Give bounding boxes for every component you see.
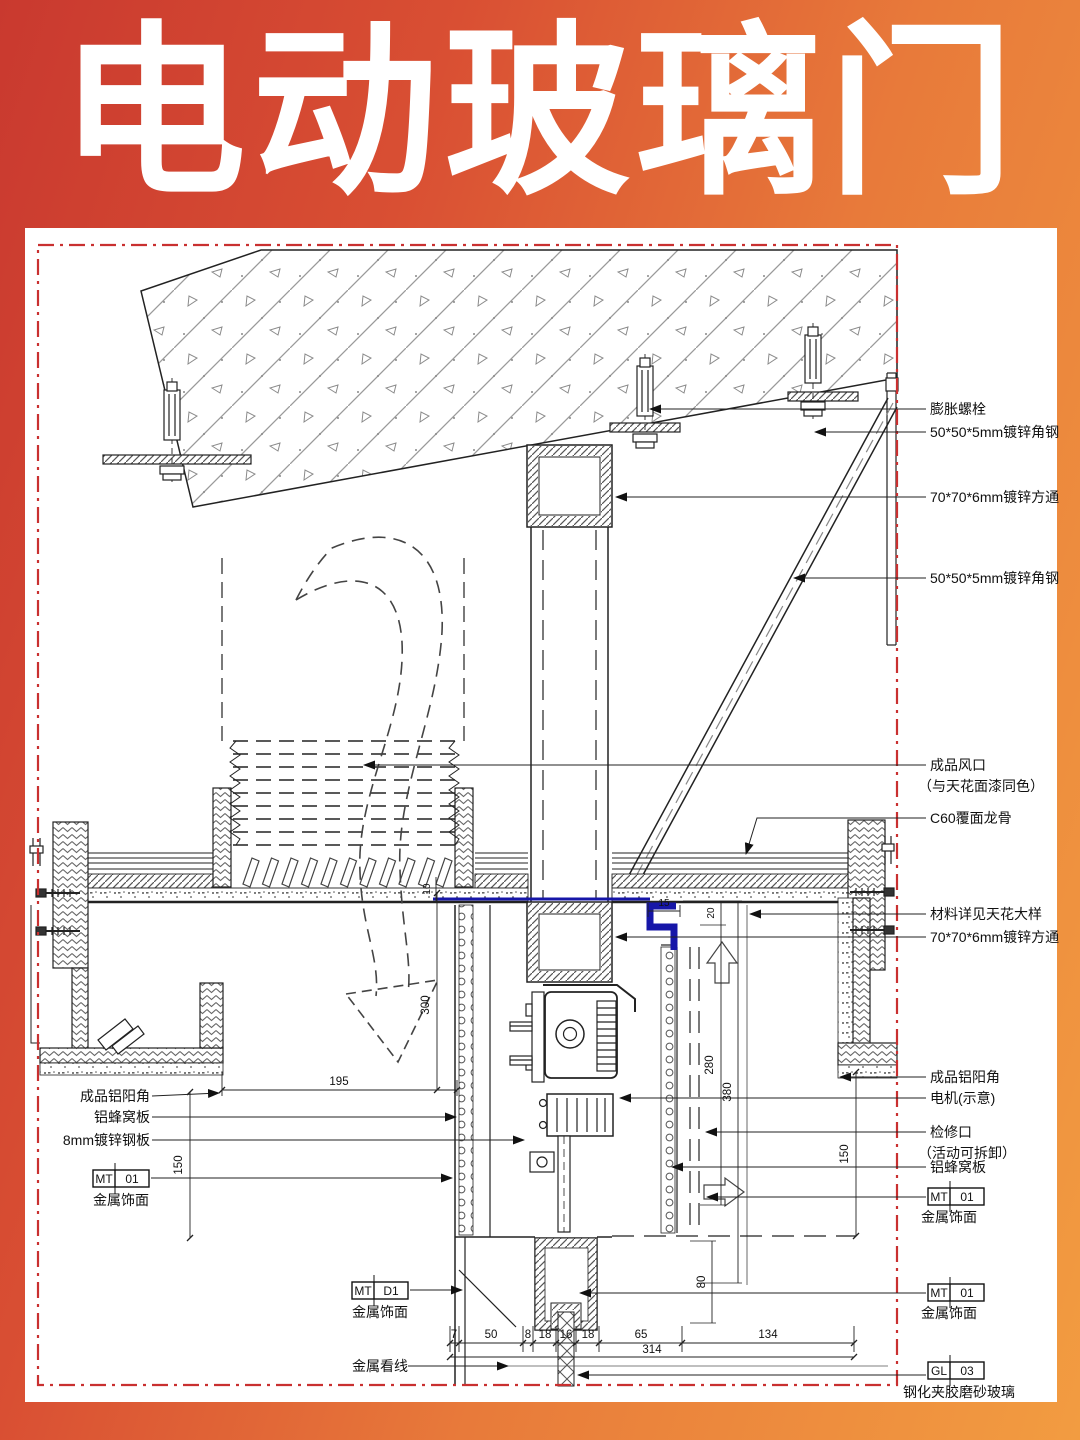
label-honeycomb-right: 铝蜂窝板 [930, 1159, 986, 1175]
tag-name: 金属饰面 [921, 1209, 977, 1225]
motor-assembly [510, 985, 635, 1232]
dim-65: 65 [635, 1329, 648, 1341]
label-sightline: 金属看线 [352, 1358, 408, 1374]
label-c60-keel: C60覆面龙骨 [930, 810, 1012, 826]
label-steel-plate: 8mm镀锌钢板 [63, 1132, 150, 1148]
dim-150-left: 150 [173, 1155, 185, 1174]
label-expansion-bolt: 膨胀螺栓 [930, 401, 986, 417]
tag-code: GL [931, 1364, 947, 1378]
label-air-outlet-sub: （与天花面漆同色） [918, 778, 1044, 794]
left-wall-assembly [30, 822, 223, 1075]
label-honeycomb-left: 铝蜂窝板 [94, 1109, 150, 1125]
cad-detail-drawing: 7 50 8 18 16 18 65 134 314 195 300 150 1… [0, 0, 1080, 1440]
tag-num: 01 [960, 1286, 974, 1300]
page: { "title": "电动玻璃门", "colors": { "gradien… [0, 0, 1080, 1440]
right-wall-assembly [838, 820, 897, 1078]
airflow-arrow [296, 537, 442, 1062]
dim-10: 10 [422, 883, 433, 895]
square-tube-lower [527, 902, 612, 982]
door-frame-glass [535, 1238, 597, 1386]
tag-mt-left: MT 01 金属饰面 [93, 1163, 149, 1208]
square-tube-top [527, 445, 612, 527]
label-material-note: 材料详见天花大样 [930, 906, 1042, 922]
tag-gl: GL 03 钢化夹胶磨砂玻璃 [903, 1355, 1015, 1400]
concrete-slab [141, 250, 897, 507]
annotation-labels-left: 成品铝阳角 铝蜂窝板 8mm镀锌钢板 金属看线 [63, 1088, 408, 1374]
tag-code: MT [930, 1190, 948, 1204]
tag-mt-right-1: MT 01 金属饰面 [921, 1181, 984, 1225]
dim-150-right: 150 [839, 1144, 851, 1163]
dim-16: 16 [560, 1329, 573, 1341]
dim-18a: 18 [539, 1329, 552, 1341]
tag-name: 金属饰面 [93, 1192, 149, 1208]
dim-15: 15 [658, 898, 670, 909]
dimension-labels: 7 50 8 18 16 18 65 134 314 195 300 150 1… [173, 883, 851, 1356]
tag-mt-bottom: MT D1 金属饰面 [352, 1275, 408, 1320]
column-shaft [531, 527, 608, 902]
label-access-panel: 检修口 [930, 1124, 972, 1140]
label-angle-steel-1: 50*50*5mm镀锌角钢 [930, 424, 1059, 440]
tag-num: 01 [125, 1172, 139, 1186]
label-square-tube-2: 70*70*6mm镀锌方通 [930, 929, 1059, 945]
tag-code: MT [95, 1172, 113, 1186]
dim-380: 380 [722, 1082, 734, 1101]
tag-name: 金属饰面 [352, 1304, 408, 1320]
label-square-tube-1: 70*70*6mm镀锌方通 [930, 489, 1059, 505]
dim-195: 195 [329, 1076, 348, 1088]
air-vent [213, 558, 473, 887]
dimension-lines [187, 877, 859, 1360]
tag-num: 01 [960, 1190, 974, 1204]
tag-num: 03 [960, 1364, 974, 1378]
dim-18b: 18 [582, 1329, 595, 1341]
tag-mt-right-2: MT 01 金属饰面 [921, 1277, 984, 1321]
label-alu-corner-right: 成品铝阳角 [930, 1069, 1000, 1085]
tag-name: 金属饰面 [921, 1305, 977, 1321]
dim-50: 50 [485, 1329, 498, 1341]
label-air-outlet: 成品风口 [930, 757, 986, 773]
tag-num: D1 [383, 1284, 399, 1298]
bulkhead [455, 905, 856, 1385]
tag-code: MT [930, 1286, 948, 1300]
tag-name: 钢化夹胶磨砂玻璃 [903, 1384, 1015, 1400]
dim-314: 314 [642, 1344, 662, 1356]
dim-300: 300 [420, 995, 432, 1014]
dim-134: 134 [758, 1329, 778, 1341]
label-motor: 电机(示意) [930, 1090, 995, 1106]
dim-8: 8 [525, 1329, 531, 1341]
label-angle-steel-2: 50*50*5mm镀锌角钢 [930, 570, 1059, 586]
label-alu-corner-left: 成品铝阳角 [80, 1088, 150, 1104]
annotation-labels-right: 膨胀螺栓 50*50*5mm镀锌角钢 70*70*6mm镀锌方通 50*50*5… [918, 401, 1059, 1175]
dim-80: 80 [696, 1276, 708, 1289]
tag-code: MT [354, 1284, 372, 1298]
dim-280: 280 [704, 1055, 716, 1074]
dim-7: 7 [451, 1329, 457, 1341]
dim-20: 20 [706, 907, 717, 919]
